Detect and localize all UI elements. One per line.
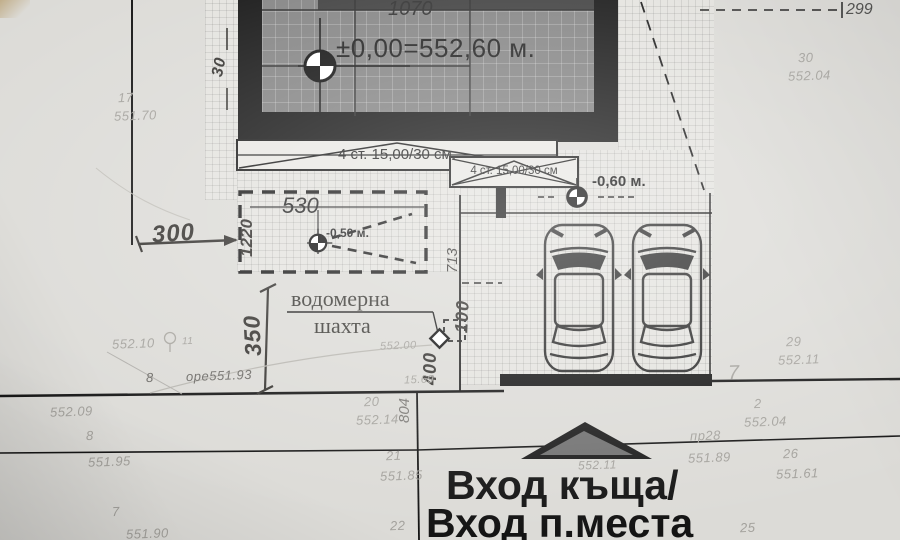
survey-labels-layer: 17551.7030552.0429552.11552.10118оре551.… — [0, 0, 900, 540]
survey-point-label: 551.89 — [688, 449, 731, 465]
survey-point-label: 17 — [118, 90, 134, 106]
survey-point-label: 30 — [798, 50, 814, 66]
survey-point-label: оре551.93 — [186, 367, 252, 384]
survey-point-label: 22 — [390, 518, 406, 534]
survey-point-label: 552.10 — [112, 335, 155, 351]
survey-point-label: 29 — [786, 334, 802, 350]
survey-point-label: 8 — [146, 370, 154, 385]
survey-point-label: 552.14 — [356, 411, 399, 427]
survey-point-label: 551.70 — [114, 107, 157, 123]
survey-point-label: 2 — [754, 396, 762, 411]
survey-point-label: 551.90 — [126, 525, 169, 540]
survey-point-label: 11 — [182, 336, 194, 347]
survey-point-label: 552.00 — [380, 339, 417, 352]
survey-point-label: 552.04 — [788, 67, 831, 83]
survey-point-label: 26 — [783, 446, 799, 462]
survey-point-label: 552.09 — [50, 403, 93, 419]
survey-point-label: 15.69 — [404, 373, 434, 386]
site-plan: 1070 299 ±0,00=552,60 м. 4 ст. 15,00/30 … — [0, 0, 900, 540]
survey-point-label: 25 — [740, 520, 756, 536]
survey-point-label: 551.61 — [776, 465, 819, 481]
survey-point-label: 552.04 — [744, 413, 787, 429]
survey-point-label: 552.11 — [778, 351, 820, 367]
survey-point-label: 8 — [86, 428, 94, 443]
survey-point-label: 552.11 — [578, 457, 617, 472]
survey-point-label: пр28 — [690, 427, 721, 443]
survey-point-label: 20 — [364, 394, 380, 410]
survey-point-label: 551.85 — [380, 467, 423, 483]
survey-point-label: 21 — [386, 448, 402, 464]
survey-point-label: 7 — [728, 362, 740, 385]
survey-point-label: 7 — [112, 504, 120, 519]
survey-point-label: 551.95 — [88, 453, 131, 469]
